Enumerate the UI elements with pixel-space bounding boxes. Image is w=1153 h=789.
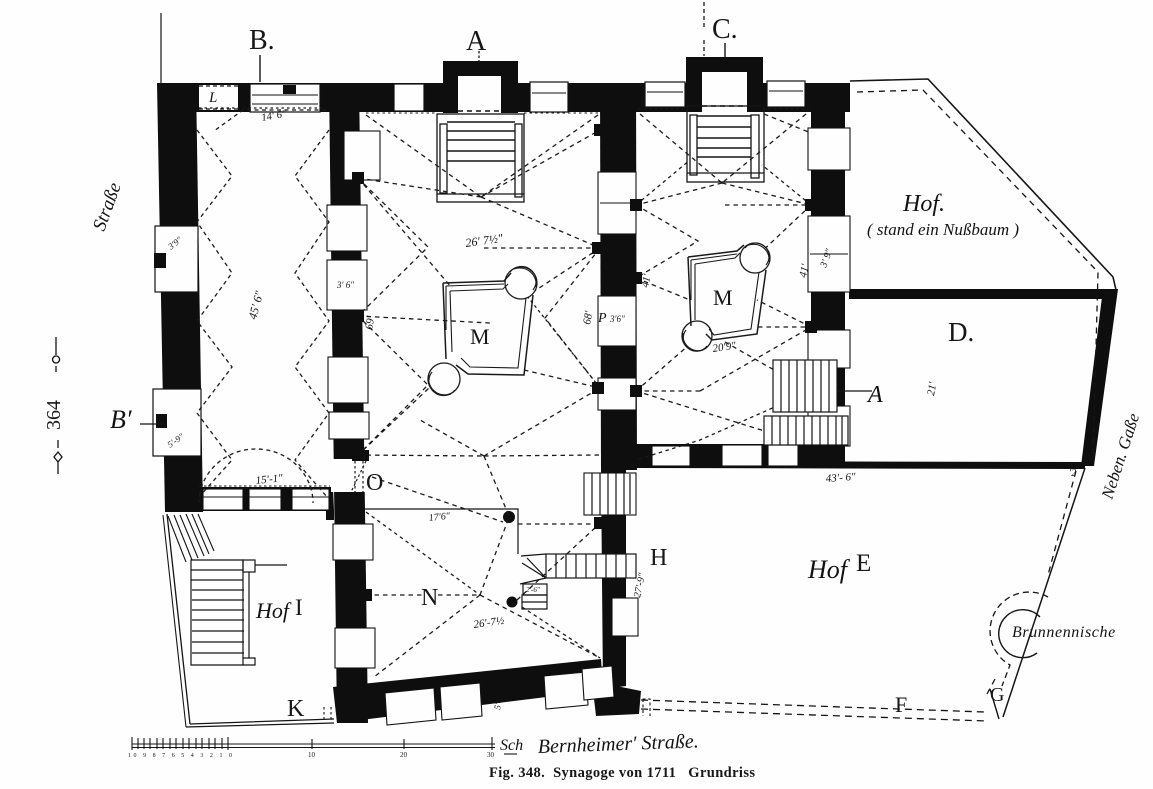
svg-text:69′: 69′ <box>363 315 377 331</box>
svg-text:H: H <box>650 545 667 571</box>
svg-text:′2: ′2 <box>1069 468 1076 479</box>
svg-text:M: M <box>470 324 490 349</box>
svg-text:N: N <box>421 585 438 611</box>
svg-text:10: 10 <box>308 751 316 759</box>
svg-text:A: A <box>466 26 487 57</box>
svg-text:A: A <box>866 382 883 408</box>
svg-text:M: M <box>713 285 733 310</box>
svg-text:20: 20 <box>400 751 408 759</box>
svg-text:( stand ein Nußbaum ): ( stand ein Nußbaum ) <box>867 220 1019 239</box>
svg-text:Hof.: Hof. <box>902 191 945 217</box>
svg-text:L: L <box>208 90 217 106</box>
svg-text:F: F <box>895 692 907 717</box>
svg-text:68′: 68′ <box>581 310 595 326</box>
svg-text:2′-6″: 2′-6″ <box>526 586 540 594</box>
svg-text:B′: B′ <box>110 405 132 434</box>
svg-text:30: 30 <box>487 751 495 759</box>
svg-text:P: P <box>597 311 607 326</box>
svg-text:17′6″: 17′6″ <box>428 511 451 524</box>
svg-text:I: I <box>295 595 303 620</box>
svg-text:43′- 6″: 43′- 6″ <box>825 471 856 485</box>
svg-text:364: 364 <box>43 400 65 430</box>
svg-text:Fig. 348. Synagoge von 1711: Fig. 348. Synagoge von 1711 Grundriss <box>489 765 755 781</box>
svg-text:21′: 21′ <box>925 381 939 397</box>
svg-text:3′ 6″: 3′ 6″ <box>336 280 354 290</box>
svg-text:K: K <box>287 696 305 722</box>
svg-text:E: E <box>856 550 871 577</box>
svg-text:3′6″: 3′6″ <box>609 314 625 324</box>
svg-text:Sch: Sch <box>500 737 523 754</box>
svg-text:Hof: Hof <box>807 555 851 584</box>
svg-text:D.: D. <box>948 317 974 347</box>
svg-text:O: O <box>366 470 383 496</box>
svg-text:B.: B. <box>249 25 275 56</box>
svg-text:G: G <box>990 684 1004 706</box>
svg-text:Brunnennische: Brunnennische <box>1012 624 1116 641</box>
svg-text:Hof: Hof <box>255 598 292 623</box>
svg-text:C.: C. <box>712 14 738 45</box>
